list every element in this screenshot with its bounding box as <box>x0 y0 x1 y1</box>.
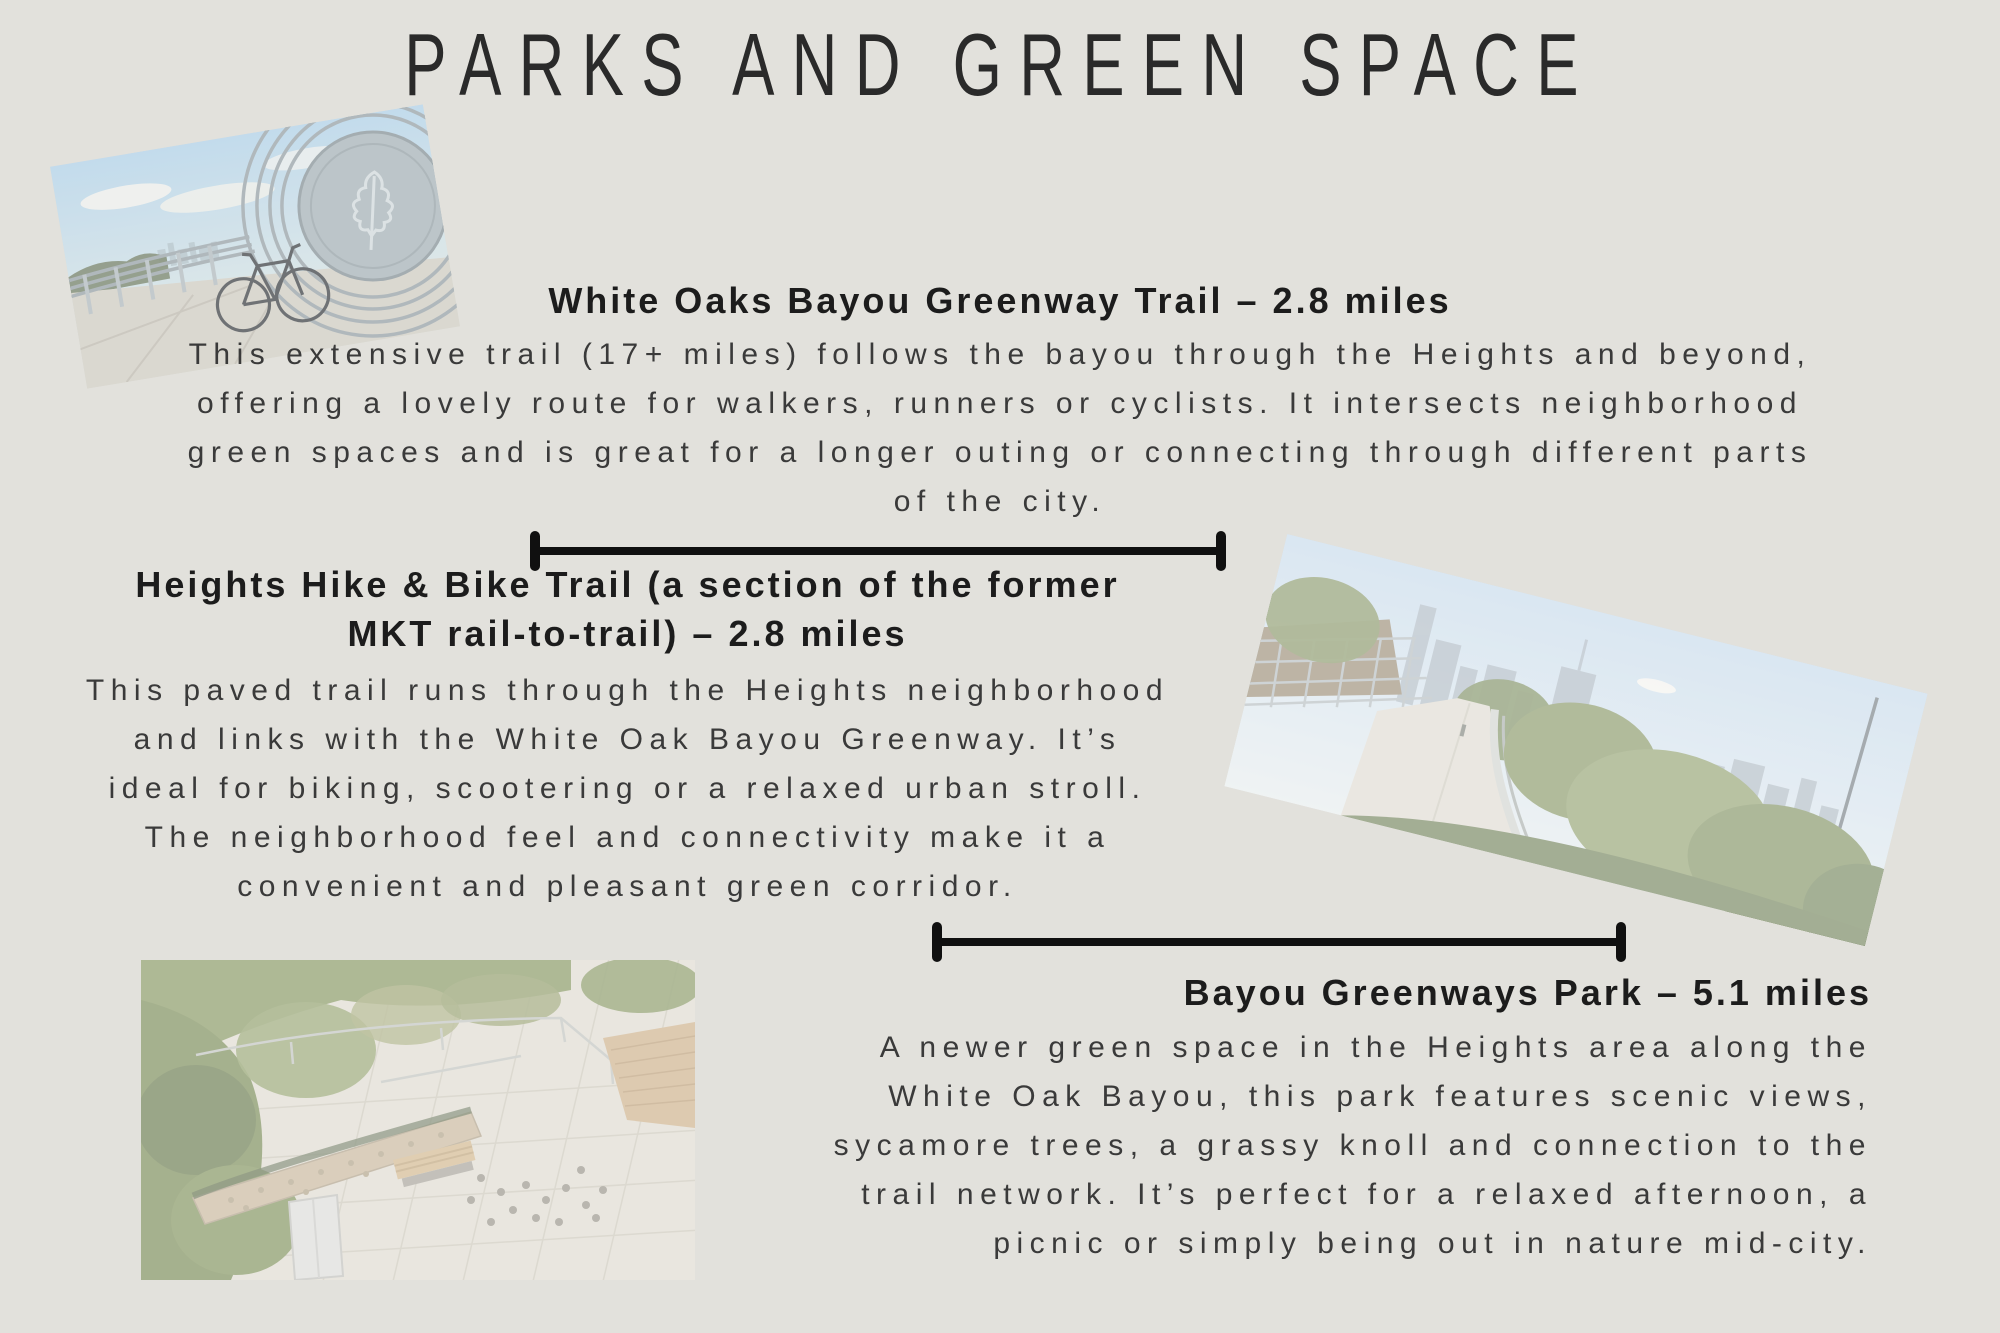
section-heading: White Oaks Bayou Greenway Trail – 2.8 mi… <box>60 276 1940 325</box>
section-heading: Heights Hike & Bike Trail (a section of … <box>25 560 1230 658</box>
section-bayou-greenways: Bayou Greenways Park – 5.1 miles A newer… <box>572 968 1872 1268</box>
trail-skyline-photo <box>1224 534 1927 946</box>
section-heading: Bayou Greenways Park – 5.1 miles <box>572 968 1872 1017</box>
section-white-oaks: White Oaks Bayou Greenway Trail – 2.8 mi… <box>60 276 1940 526</box>
section-body: A newer green space in the Heights area … <box>572 1023 1872 1268</box>
section-heights-hike-bike: Heights Hike & Bike Trail (a section of … <box>25 560 1230 911</box>
divider-line-2 <box>936 938 1622 946</box>
page-title: PARKS AND GREEN SPACE <box>280 14 1720 116</box>
trail-skyline-photo-art <box>1224 534 1927 946</box>
divider-line-1 <box>534 547 1222 555</box>
section-body: This paved trail runs through the Height… <box>25 666 1230 911</box>
poster-page: PARKS AND GREEN SPACE <box>0 0 2000 1333</box>
section-body: This extensive trail (17+ miles) follows… <box>60 330 1940 526</box>
